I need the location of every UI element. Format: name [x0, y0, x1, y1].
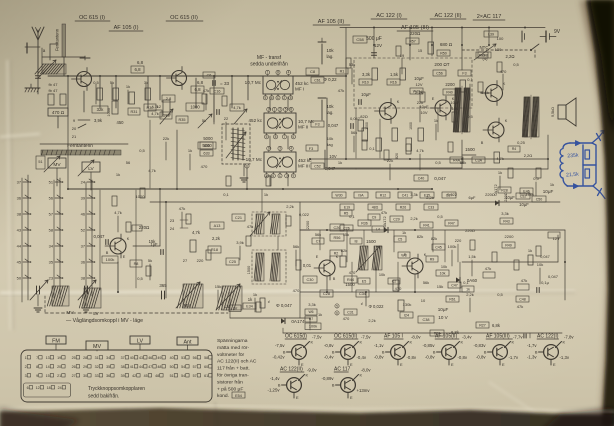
svg-text:C47: C47	[451, 283, 458, 287]
svg-text:MF II: MF II	[298, 124, 308, 129]
svg-text:100k: 100k	[106, 257, 115, 262]
svg-text:AF 105 I: AF 105 I	[384, 334, 403, 340]
svg-text:220Ω: 220Ω	[139, 225, 150, 230]
svg-text:-0,8v: -0,8v	[374, 355, 384, 360]
svg-text:= 33: = 33	[220, 81, 230, 86]
svg-text:10k: 10k	[326, 104, 334, 109]
svg-text:8: 8	[290, 108, 292, 112]
svg-text:1k: 1k	[338, 160, 342, 165]
svg-text:21: 21	[72, 134, 77, 139]
svg-text:200 ΩT: 200 ΩT	[434, 62, 449, 67]
svg-text:4,7k: 4,7k	[192, 230, 201, 235]
svg-text:F3: F3	[309, 147, 313, 151]
svg-text:3: 3	[279, 108, 281, 112]
svg-text:36: 36	[17, 196, 21, 201]
svg-text:fb 47: fb 47	[49, 82, 59, 87]
svg-text:FM: FM	[52, 339, 60, 345]
svg-text:E54: E54	[235, 394, 242, 398]
svg-text:2,2k: 2,2k	[212, 236, 221, 241]
svg-text:R10: R10	[362, 80, 369, 84]
svg-text:0,5: 0,5	[497, 292, 503, 297]
svg-text:10k: 10k	[440, 271, 446, 275]
svg-text:3,3k: 3,3k	[410, 192, 418, 197]
svg-text:5: 5	[265, 96, 267, 100]
svg-text:4,7k: 4,7k	[496, 156, 504, 161]
svg-text:-3,4v: -3,4v	[462, 335, 472, 340]
svg-text:R40: R40	[446, 90, 453, 94]
svg-text:K: K	[360, 340, 363, 345]
svg-text:56: 56	[126, 160, 131, 165]
svg-text:30: 30	[83, 374, 87, 378]
svg-text:47k: 47k	[203, 88, 209, 93]
svg-text:1000: 1000	[107, 108, 111, 116]
svg-text:B: B	[333, 277, 336, 281]
svg-text:1500: 1500	[345, 282, 355, 287]
svg-text:R1: R1	[340, 69, 345, 73]
svg-text:117 från + batt.: 117 från + batt.	[217, 365, 250, 372]
svg-text:2: 2	[25, 365, 27, 369]
svg-text:C38: C38	[423, 318, 430, 322]
svg-text:1k: 1k	[264, 192, 268, 197]
svg-text:25: 25	[72, 356, 76, 360]
svg-text:53: 53	[181, 356, 185, 360]
svg-text:1k: 1k	[498, 170, 502, 175]
svg-text:45: 45	[17, 260, 21, 265]
svg-text:MF I: MF I	[295, 87, 304, 92]
svg-text:1k: 1k	[528, 248, 532, 253]
svg-text:31: 31	[95, 356, 99, 360]
svg-text:35: 35	[49, 260, 53, 265]
svg-text:lag: lag	[327, 142, 332, 147]
svg-text:43: 43	[17, 228, 21, 233]
svg-text:E5: E5	[362, 279, 366, 283]
svg-text:0,1: 0,1	[463, 280, 468, 285]
svg-text:9: 9	[293, 174, 295, 178]
svg-text:sistorer från: sistorer från	[217, 378, 243, 385]
svg-text:10μF: 10μF	[519, 202, 529, 207]
svg-text:C45: C45	[435, 245, 442, 249]
svg-text:38: 38	[121, 365, 125, 369]
svg-text:13: 13	[46, 356, 50, 360]
svg-text:24: 24	[58, 386, 62, 390]
svg-text:OC 615 (I): OC 615 (I)	[79, 15, 105, 21]
svg-text:37: 37	[121, 356, 125, 360]
svg-text:6: 6	[27, 386, 29, 390]
svg-text:15k: 15k	[343, 232, 349, 237]
svg-text:23: 23	[170, 218, 175, 223]
svg-text:C61: C61	[314, 78, 321, 82]
svg-text:5: 5	[266, 135, 268, 139]
svg-text:C40: C40	[418, 176, 425, 180]
svg-text:10: 10	[421, 298, 426, 303]
svg-text:C21: C21	[235, 216, 242, 220]
svg-text:E34: E34	[246, 304, 252, 308]
svg-text:2200: 2200	[306, 221, 310, 229]
svg-text:E19: E19	[344, 205, 350, 209]
svg-text:220Ω: 220Ω	[410, 31, 421, 36]
svg-text:8: 8	[277, 71, 279, 75]
svg-text:AC 117: AC 117	[334, 367, 351, 373]
svg-text:100k: 100k	[526, 192, 535, 197]
svg-text:54: 54	[181, 374, 185, 378]
svg-text:1000: 1000	[365, 122, 369, 130]
svg-text:82Ω: 82Ω	[360, 114, 367, 119]
svg-text:AF 105 (II): AF 105 (II)	[318, 19, 345, 25]
svg-text:10μF: 10μF	[419, 104, 429, 109]
svg-text:22k: 22k	[387, 158, 393, 163]
svg-text:58: 58	[49, 228, 53, 233]
svg-text:2,2k: 2,2k	[286, 204, 294, 209]
svg-text:LV: LV	[233, 306, 238, 311]
svg-text:AC 122(I): AC 122(I)	[537, 334, 559, 340]
svg-text:0,25: 0,25	[517, 140, 526, 145]
svg-text:1000: 1000	[190, 105, 200, 110]
svg-text:24: 24	[81, 180, 86, 185]
svg-text:18: 18	[47, 386, 51, 390]
svg-text:F3: F3	[462, 71, 466, 75]
svg-text:E: E	[432, 97, 435, 101]
svg-text:36: 36	[106, 374, 110, 378]
svg-text:1pF: 1pF	[150, 242, 158, 247]
svg-text:E35: E35	[424, 193, 430, 197]
svg-text:K: K	[410, 340, 413, 345]
svg-text:9,5kΩ: 9,5kΩ	[551, 107, 555, 117]
svg-text:38: 38	[81, 276, 85, 281]
svg-text:10μF: 10μF	[450, 100, 460, 105]
svg-text:1k: 1k	[402, 230, 406, 235]
svg-text:AC 122(II) och AC: AC 122(II) och AC	[217, 359, 257, 365]
svg-text:1,5k: 1,5k	[390, 72, 399, 77]
svg-text:1k: 1k	[434, 118, 438, 123]
svg-text:9: 9	[36, 374, 38, 378]
svg-text:8: 8	[290, 96, 292, 100]
svg-text:E: E	[350, 395, 353, 400]
svg-text:46: 46	[148, 356, 152, 360]
svg-text:2,2Ω: 2,2Ω	[524, 153, 533, 158]
svg-text:0,1: 0,1	[369, 146, 375, 151]
svg-text:4: 4	[288, 71, 290, 75]
svg-text:+13mv: +13mv	[357, 388, 371, 393]
svg-text:5000: 5000	[202, 143, 212, 148]
svg-text:AF 105(III): AF 105(III)	[486, 334, 510, 340]
svg-text:Spänningarna: Spänningarna	[217, 338, 248, 344]
svg-text:130: 130	[495, 47, 502, 52]
svg-text:5k: 5k	[148, 258, 152, 263]
svg-text:K: K	[311, 340, 314, 345]
svg-text:27: 27	[183, 258, 188, 263]
svg-text:B: B	[481, 141, 484, 145]
svg-text:-7,5v: -7,5v	[361, 335, 371, 340]
svg-text:6: 6	[272, 174, 274, 178]
svg-text:R49: R49	[505, 243, 512, 247]
svg-text:220Ω: 220Ω	[485, 192, 495, 197]
svg-text:L4: L4	[376, 227, 380, 231]
svg-text:LV: LV	[88, 166, 94, 172]
svg-text:6,8: 6,8	[197, 80, 204, 85]
svg-text:47k: 47k	[521, 278, 527, 283]
svg-text:-0,8v: -0,8v	[407, 355, 417, 360]
svg-text:-8,0v: -8,0v	[361, 368, 371, 373]
svg-text:49: 49	[157, 356, 161, 360]
svg-text:54: 54	[181, 365, 185, 369]
svg-text:I24: I24	[404, 313, 409, 317]
svg-text:MV: MV	[93, 344, 101, 350]
svg-text:-1,3v: -1,3v	[560, 355, 570, 360]
svg-text:AC 122 (I): AC 122 (I)	[376, 13, 402, 19]
svg-text:45: 45	[144, 374, 148, 378]
svg-text:C13: C13	[163, 114, 170, 118]
svg-text:6,8: 6,8	[134, 67, 141, 72]
svg-text:32k: 32k	[97, 107, 105, 112]
svg-text:1k: 1k	[466, 287, 470, 291]
svg-text:AC 122 (II): AC 122 (II)	[434, 13, 461, 19]
svg-text:40: 40	[130, 356, 134, 360]
svg-text:450: 450	[117, 120, 125, 125]
svg-text:K: K	[127, 237, 130, 241]
svg-text:5000: 5000	[203, 136, 213, 141]
svg-text:F3: F3	[315, 122, 319, 126]
svg-text:C6: C6	[207, 73, 212, 77]
svg-text:mätta med rör-: mätta med rör-	[217, 345, 249, 351]
svg-text:-7,5v: -7,5v	[275, 343, 285, 348]
svg-text:26: 26	[72, 365, 76, 369]
svg-text:K: K	[563, 340, 566, 345]
svg-text:K: K	[360, 373, 363, 378]
svg-text:0,5: 0,5	[533, 176, 539, 181]
svg-text:-1,3v: -1,3v	[527, 355, 537, 360]
svg-text:OC 615 (II): OC 615 (II)	[170, 15, 198, 21]
svg-text:220: 220	[455, 238, 462, 243]
svg-text:R26: R26	[400, 205, 406, 209]
svg-text:C16: C16	[214, 89, 221, 93]
svg-text:-1,1v: -1,1v	[374, 343, 384, 348]
svg-text:1k: 1k	[318, 312, 322, 317]
svg-text:470: 470	[349, 270, 356, 275]
svg-text:10μF: 10μF	[361, 92, 371, 97]
svg-text:51: 51	[170, 374, 174, 378]
svg-text:470: 470	[343, 316, 350, 321]
svg-text:OC 615(I): OC 615(I)	[285, 334, 307, 340]
svg-text:48Ω: 48Ω	[372, 205, 379, 209]
svg-text:C50: C50	[536, 197, 543, 201]
svg-text:W30: W30	[335, 193, 342, 197]
svg-text:6μF: 6μF	[469, 195, 477, 200]
svg-text:3: 3	[279, 147, 281, 151]
svg-text:10μF: 10μF	[543, 189, 554, 194]
svg-text:40: 40	[170, 356, 174, 360]
svg-text:A13: A13	[214, 224, 221, 228]
svg-text:56k: 56k	[293, 244, 299, 249]
svg-text:20: 20	[72, 126, 77, 131]
svg-text:0,047: 0,047	[350, 116, 361, 121]
svg-text:4,7k: 4,7k	[416, 148, 424, 153]
svg-text:-1,25v: -1,25v	[268, 388, 281, 393]
svg-text:1: 1	[268, 147, 270, 151]
svg-text:15: 15	[46, 374, 50, 378]
svg-text:52: 52	[81, 228, 85, 233]
svg-text:6,8: 6,8	[194, 87, 201, 92]
svg-text:5k: 5k	[202, 118, 206, 123]
svg-text:K: K	[512, 340, 515, 345]
svg-text:452 kc: 452 kc	[248, 118, 262, 123]
svg-text:6: 6	[293, 135, 295, 139]
svg-text:C7: C7	[316, 239, 321, 243]
svg-text:50: 50	[17, 276, 22, 281]
svg-text:E: E	[350, 362, 353, 367]
svg-text:C8: C8	[310, 69, 316, 74]
svg-text:R13: R13	[479, 53, 486, 57]
svg-text:20: 20	[57, 365, 61, 369]
svg-text:41: 41	[130, 365, 134, 369]
svg-text:R9: R9	[430, 257, 435, 261]
svg-text:32: 32	[95, 365, 99, 369]
svg-text:-0,83v: -0,83v	[474, 343, 487, 348]
svg-text:5,6k: 5,6k	[481, 90, 489, 95]
svg-text:voltmeter för: voltmeter för	[217, 352, 245, 358]
svg-text:235k: 235k	[567, 153, 579, 160]
svg-text:NTC: NTC	[479, 45, 488, 50]
svg-text:19: 19	[57, 356, 61, 360]
svg-text:0,01: 0,01	[303, 263, 312, 268]
svg-text:AC 122(II): AC 122(II)	[280, 367, 303, 373]
svg-text:7: 7	[36, 356, 38, 360]
svg-text:12: 12	[157, 105, 161, 109]
svg-text:MF - transf: MF - transf	[257, 55, 282, 61]
svg-text:9V: 9V	[554, 29, 561, 35]
svg-text:kond.: kond.	[217, 393, 229, 399]
svg-text:0,047: 0,047	[328, 123, 339, 128]
svg-text:C2: C2	[392, 279, 397, 283]
svg-text:Ant: Ant	[183, 340, 192, 346]
svg-text:34: 34	[106, 356, 110, 360]
svg-text:10,7 Mc: 10,7 Mc	[246, 157, 263, 162]
svg-text:39: 39	[81, 196, 85, 201]
svg-text:C31: C31	[347, 310, 354, 314]
svg-text:470 Ω: 470 Ω	[52, 110, 65, 115]
svg-text:0,047: 0,047	[325, 166, 336, 171]
svg-text:OC 615(II): OC 615(II)	[334, 334, 358, 340]
svg-text:28: 28	[83, 356, 87, 360]
svg-text:12V: 12V	[374, 43, 383, 48]
svg-text:21: 21	[57, 374, 61, 378]
svg-text:fb 47: fb 47	[49, 88, 59, 93]
svg-text:56: 56	[193, 356, 197, 360]
svg-text:0,5: 0,5	[467, 114, 473, 119]
svg-text:R43: R43	[503, 219, 510, 223]
svg-text:7: 7	[286, 174, 288, 178]
svg-text:22: 22	[224, 116, 229, 121]
svg-text:C5: C5	[398, 237, 403, 241]
svg-text:+ på 500 μF: + på 500 μF	[217, 385, 243, 392]
svg-text:470: 470	[500, 69, 507, 74]
svg-text:36: 36	[81, 260, 85, 265]
svg-text:27: 27	[72, 374, 76, 378]
svg-text:82k: 82k	[417, 234, 423, 239]
svg-text:C25: C25	[229, 260, 236, 264]
svg-text:58: 58	[204, 356, 208, 360]
svg-text:48: 48	[157, 365, 161, 369]
svg-text:10k: 10k	[326, 48, 334, 53]
svg-text:15k: 15k	[437, 284, 443, 289]
svg-text:Ferritantenn: Ferritantenn	[55, 28, 60, 51]
svg-text:K: K	[461, 340, 464, 345]
svg-text:R12: R12	[380, 193, 386, 197]
svg-text:470: 470	[395, 286, 402, 291]
svg-text:I9A: I9A	[358, 193, 364, 197]
svg-text:10,7 Mc: 10,7 Mc	[298, 119, 315, 124]
svg-text:C26: C26	[334, 226, 341, 230]
svg-text:9: 9	[73, 118, 76, 123]
svg-text:0,047: 0,047	[434, 176, 446, 181]
svg-text:K: K	[306, 373, 309, 378]
svg-text:-1,7v: -1,7v	[509, 355, 519, 360]
svg-text:R5: R5	[344, 211, 349, 215]
svg-text:-1,7v: -1,7v	[527, 343, 537, 348]
svg-text:Φ 0,22: Φ 0,22	[323, 77, 337, 82]
svg-text:lag.: lag.	[326, 54, 333, 59]
svg-text:C41: C41	[402, 193, 408, 197]
svg-text:50: 50	[170, 365, 174, 369]
svg-text:47k: 47k	[485, 266, 491, 271]
svg-text:47: 47	[148, 365, 152, 369]
svg-text:E: E	[296, 395, 299, 400]
svg-text:10k: 10k	[537, 262, 543, 267]
svg-text:1: 1	[25, 356, 27, 360]
svg-text:C48: C48	[519, 297, 526, 301]
svg-text:57: 57	[49, 212, 53, 217]
svg-text:2×AC 117: 2×AC 117	[477, 14, 502, 20]
svg-text:24: 24	[170, 226, 175, 231]
svg-text:-7,8v: -7,8v	[564, 335, 574, 340]
svg-text:R50: R50	[440, 51, 447, 55]
svg-text:-1,4v: -1,4v	[270, 376, 280, 381]
svg-text:C34: C34	[359, 292, 366, 296]
svg-text:56k: 56k	[460, 160, 466, 165]
svg-text:E: E	[123, 255, 126, 259]
svg-text:C37: C37	[446, 193, 452, 197]
svg-text:K: K	[505, 119, 508, 123]
svg-text:sedda underifrån: sedda underifrån	[250, 61, 288, 68]
svg-text:38: 38	[17, 212, 21, 217]
svg-text:≠: ≠	[268, 299, 271, 304]
svg-text:47k: 47k	[338, 88, 344, 93]
svg-text:2,2k: 2,2k	[415, 90, 424, 95]
svg-text:12 I: 12 I	[553, 236, 560, 241]
svg-text:3,9k: 3,9k	[236, 240, 244, 245]
svg-text:B: B	[106, 251, 109, 255]
svg-text:100k: 100k	[448, 244, 457, 249]
svg-text:12V: 12V	[415, 82, 422, 87]
svg-text:1k: 1k	[253, 292, 257, 297]
svg-text:2: 2	[283, 96, 285, 100]
svg-text:6,8: 6,8	[137, 60, 144, 65]
svg-text:1k: 1k	[550, 182, 554, 187]
svg-text:LV: LV	[137, 339, 144, 345]
svg-text:56k: 56k	[423, 280, 429, 285]
svg-text:-0,8v: -0,8v	[324, 343, 334, 348]
svg-text:R16: R16	[390, 80, 397, 84]
svg-text:10μF: 10μF	[414, 76, 424, 81]
svg-text:C30: C30	[307, 278, 314, 282]
svg-text:2,2Ω: 2,2Ω	[506, 54, 515, 59]
svg-text:sedd bakifrån.: sedd bakifrån.	[88, 393, 119, 400]
svg-text:B: B	[332, 383, 335, 388]
svg-text:0,5: 0,5	[93, 80, 99, 85]
svg-text:2200: 2200	[505, 234, 515, 239]
svg-text:4,7k: 4,7k	[148, 168, 156, 173]
svg-text:MV: MV	[184, 303, 192, 308]
svg-text:-0,8v: -0,8v	[425, 355, 435, 360]
